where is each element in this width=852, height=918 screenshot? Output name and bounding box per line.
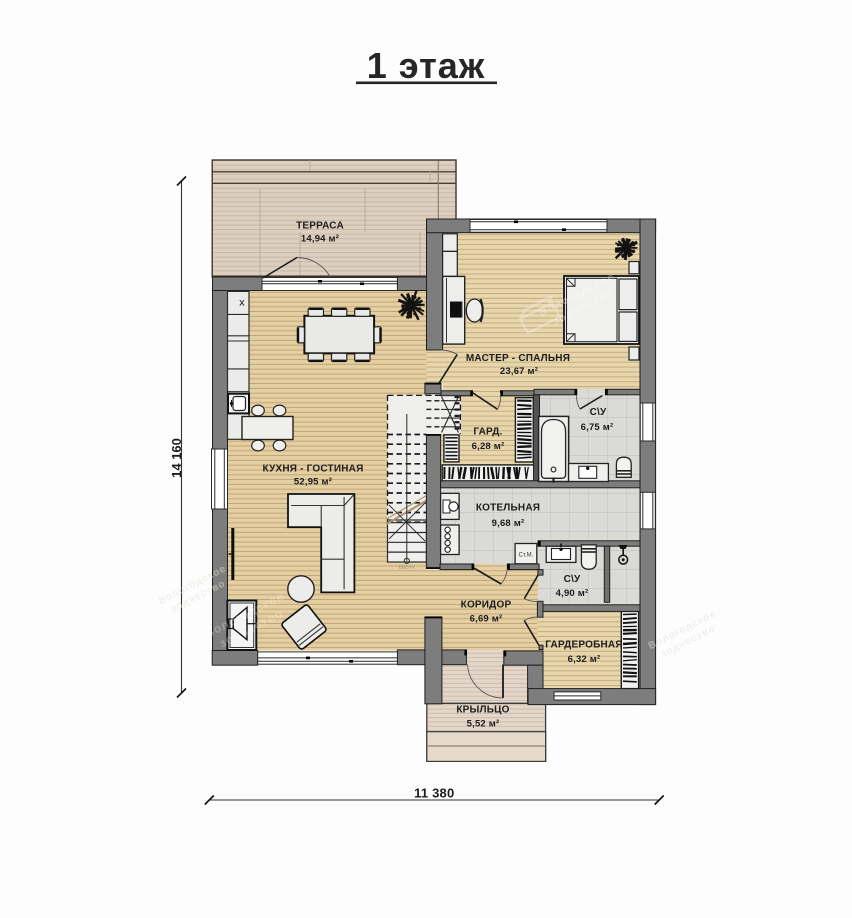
svg-text:6,75 м²: 6,75 м² bbox=[581, 422, 614, 433]
svg-text:1 этаж: 1 этаж bbox=[367, 45, 486, 86]
svg-text:С\У: С\У bbox=[590, 407, 607, 418]
svg-text:КРЫЛЬЦО: КРЫЛЬЦО bbox=[456, 705, 509, 716]
svg-text:ВВЕРХ: ВВЕРХ bbox=[399, 565, 415, 570]
svg-text:КУХНЯ - ГОСТИНАЯ: КУХНЯ - ГОСТИНАЯ bbox=[263, 464, 364, 475]
svg-text:4,90 м²: 4,90 м² bbox=[556, 588, 589, 599]
svg-text:КОРИДОР: КОРИДОР bbox=[461, 600, 512, 611]
svg-text:С\У: С\У bbox=[564, 574, 581, 585]
svg-text:6,28 м²: 6,28 м² bbox=[472, 441, 505, 452]
svg-text:Ст.М.: Ст.М. bbox=[519, 553, 534, 559]
svg-text:6,69 м²: 6,69 м² bbox=[470, 614, 503, 625]
svg-text:11 380: 11 380 bbox=[414, 786, 454, 801]
svg-text:23,67 м²: 23,67 м² bbox=[500, 366, 538, 377]
svg-text:9,68 м²: 9,68 м² bbox=[492, 518, 525, 529]
svg-text:52,95 м²: 52,95 м² bbox=[294, 477, 332, 488]
svg-text:МАСТЕР - СПАЛЬНЯ: МАСТЕР - СПАЛЬНЯ bbox=[466, 353, 570, 364]
svg-text:14,94 м²: 14,94 м² bbox=[301, 234, 339, 245]
svg-text:КОТЕЛЬНАЯ: КОТЕЛЬНАЯ bbox=[476, 503, 540, 514]
svg-text:5,52 м²: 5,52 м² bbox=[467, 719, 500, 730]
svg-text:ГАРД.: ГАРД. bbox=[473, 427, 502, 438]
svg-text:6,32 м²: 6,32 м² bbox=[568, 654, 601, 665]
svg-text:ТЕРРАСА: ТЕРРАСА bbox=[296, 221, 344, 232]
svg-text:ГАРДЕРОБНАЯ: ГАРДЕРОБНАЯ bbox=[545, 640, 622, 651]
svg-text:14 160: 14 160 bbox=[169, 438, 184, 478]
